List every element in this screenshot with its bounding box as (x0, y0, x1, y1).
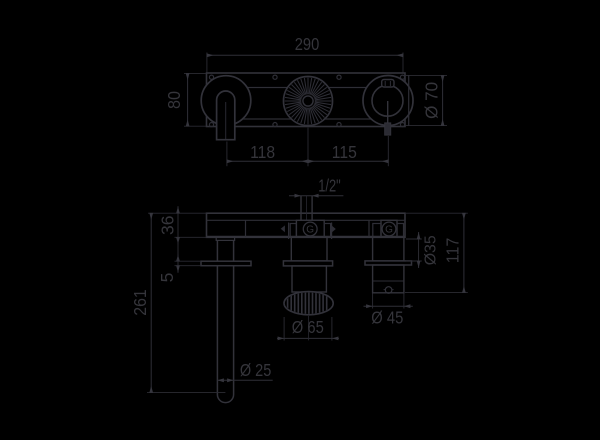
svg-text:G: G (385, 225, 393, 236)
svg-text:118: 118 (250, 142, 275, 162)
svg-text:5: 5 (157, 273, 177, 283)
svg-text:290: 290 (295, 34, 320, 54)
svg-text:1/2": 1/2" (318, 175, 341, 195)
svg-text:Ø 45: Ø 45 (371, 308, 403, 328)
svg-text:Ø35: Ø35 (422, 235, 439, 265)
svg-text:115: 115 (332, 142, 357, 162)
svg-text:G: G (306, 225, 314, 236)
svg-text:80: 80 (164, 91, 184, 109)
svg-text:36: 36 (158, 216, 178, 236)
svg-text:261: 261 (130, 289, 150, 316)
svg-text:117: 117 (443, 238, 463, 264)
svg-text:Ø 25: Ø 25 (240, 360, 272, 380)
svg-text:Ø 65: Ø 65 (292, 317, 324, 337)
svg-text:Ø 70: Ø 70 (422, 82, 442, 119)
